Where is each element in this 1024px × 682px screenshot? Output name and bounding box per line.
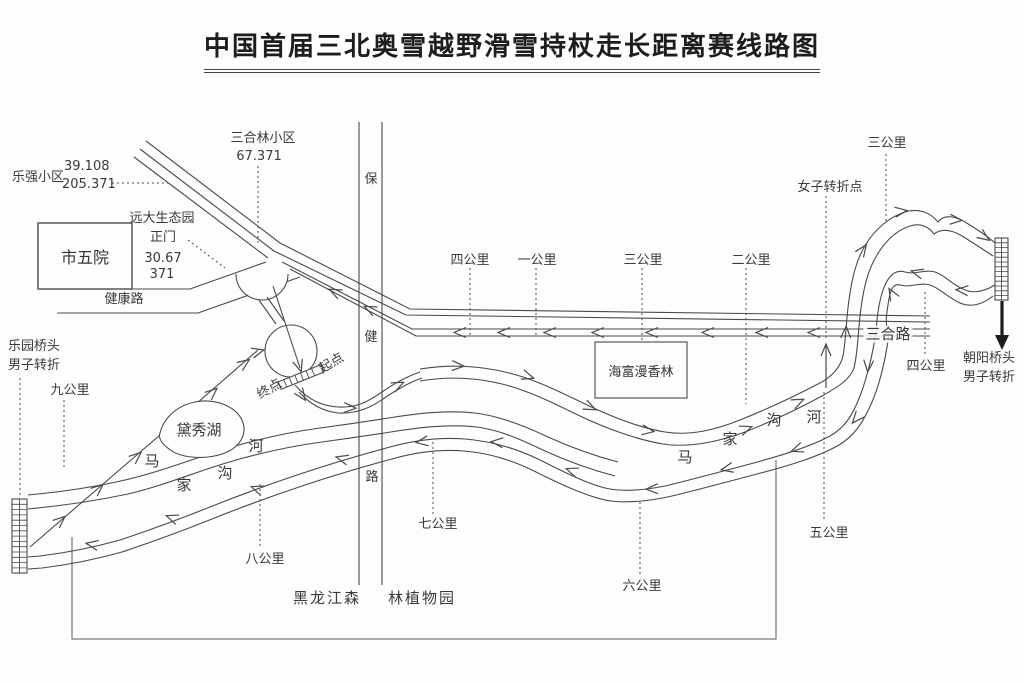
label-river-right-1: 马 [677, 449, 692, 466]
label-forest-park-left: 黑龙江森 [293, 590, 361, 607]
label-baojian-2: 健 [363, 331, 378, 345]
leyuan-bridge-icon [12, 499, 27, 573]
sanhe-road [134, 141, 930, 336]
label-km5: 五公里 [809, 527, 848, 541]
label-km1-top: 一公里 [517, 254, 556, 268]
label-sanhelin-name: 三合林小区 [230, 132, 295, 146]
junction-semicircle [236, 274, 288, 300]
label-forest-park-right: 林植物园 [388, 590, 456, 607]
baojian-road [359, 122, 382, 585]
road-route-arrows [327, 285, 912, 338]
label-river-left-1: 马 [144, 453, 159, 470]
river-north-bank [28, 412, 618, 509]
label-yuanda-name: 远大生态园 [129, 212, 194, 226]
label-yuanda-num2: 371 [150, 268, 175, 282]
label-leyuan-2: 男子转折 [8, 359, 60, 373]
label-baojian-1: 保 [363, 173, 378, 187]
label-leqiang-num2: 205.371 [62, 178, 116, 192]
label-jiankang-road: 健康路 [104, 293, 143, 307]
label-km2-top: 二公里 [731, 254, 770, 268]
label-chaoyang-1: 朝阳桥头 [963, 352, 1015, 366]
label-leyuan-1: 乐园桥头 [8, 340, 60, 354]
label-km7: 七公里 [418, 518, 457, 532]
label-yuanda-gate: 正门 [150, 231, 176, 245]
label-km3-right: 三公里 [867, 137, 906, 151]
chaoyang-bridge-icon [995, 238, 1008, 300]
label-river-left-4: 河 [248, 438, 263, 455]
label-river-left-2: 家 [176, 477, 191, 494]
label-river-right-4: 河 [806, 409, 821, 426]
label-km3-top: 三公里 [623, 254, 662, 268]
label-sanhe-road: 三合路 [863, 326, 912, 343]
label-river-right-2: 家 [722, 431, 737, 448]
label-km6: 六公里 [622, 580, 661, 594]
label-leqiang-name: 乐强小区 [12, 171, 64, 185]
label-yuanda-num1: 30.67 [144, 252, 181, 266]
label-women-turn: 女子转折点 [797, 181, 862, 195]
label-km9: 九公里 [50, 384, 89, 398]
label-daixiu-lake: 黛秀湖 [176, 422, 221, 439]
label-km4-top: 四公里 [450, 254, 489, 268]
label-haifu: 海富漫香林 [595, 342, 687, 398]
label-km8: 八公里 [245, 553, 284, 567]
route-map-page: 中国首届三北奥雪越野滑雪持杖走长距离赛线路图 乐强小区 39.108 205.3… [0, 0, 1024, 682]
label-river-right-3: 沟 [766, 412, 781, 429]
label-sanhelin-num: 67.371 [236, 150, 282, 164]
label-hospital: 市五院 [38, 223, 132, 289]
page-title: 中国首届三北奥雪越野滑雪持杖走长距离赛线路图 [204, 26, 820, 73]
label-km4-right: 四公里 [906, 360, 945, 374]
chaoyang-turn-arrow [995, 301, 1009, 350]
label-river-left-3: 沟 [217, 465, 232, 482]
label-baojian-3: 路 [364, 471, 379, 485]
label-leqiang-num1: 39.108 [64, 160, 110, 174]
label-chaoyang-2: 男子转折 [963, 371, 1015, 385]
